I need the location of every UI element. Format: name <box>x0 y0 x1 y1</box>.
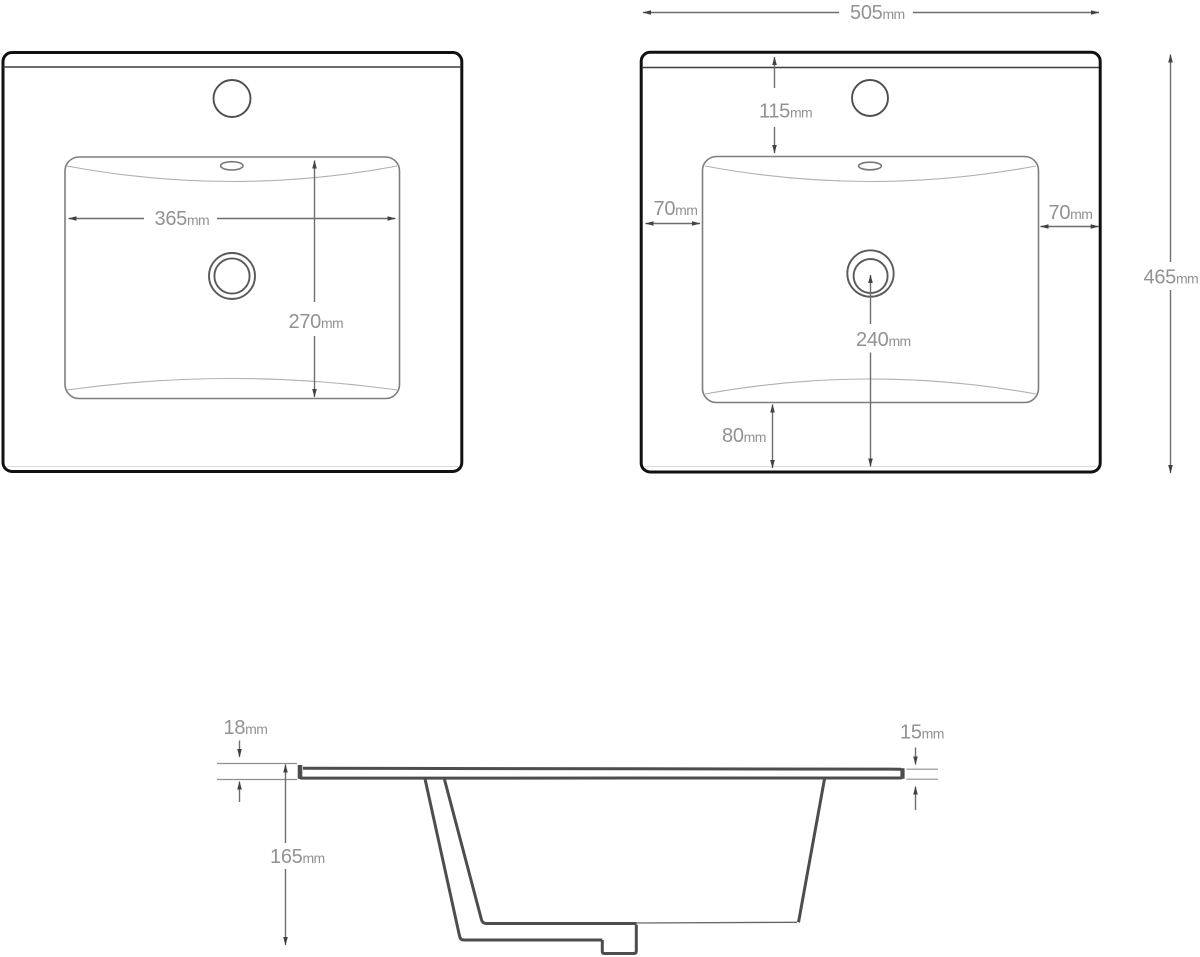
svg-text:115mm: 115mm <box>759 101 812 123</box>
svg-text:80mm: 80mm <box>722 425 766 447</box>
svg-text:365mm: 365mm <box>155 208 210 230</box>
svg-text:70mm: 70mm <box>654 198 698 220</box>
svg-text:505mm: 505mm <box>850 2 905 24</box>
svg-text:18mm: 18mm <box>224 717 268 739</box>
svg-text:15mm: 15mm <box>900 722 944 744</box>
svg-text:465mm: 465mm <box>1144 267 1199 289</box>
svg-text:240mm: 240mm <box>856 329 911 351</box>
svg-text:270mm: 270mm <box>289 311 344 333</box>
svg-text:165mm: 165mm <box>270 846 325 868</box>
svg-text:70mm: 70mm <box>1049 202 1093 224</box>
